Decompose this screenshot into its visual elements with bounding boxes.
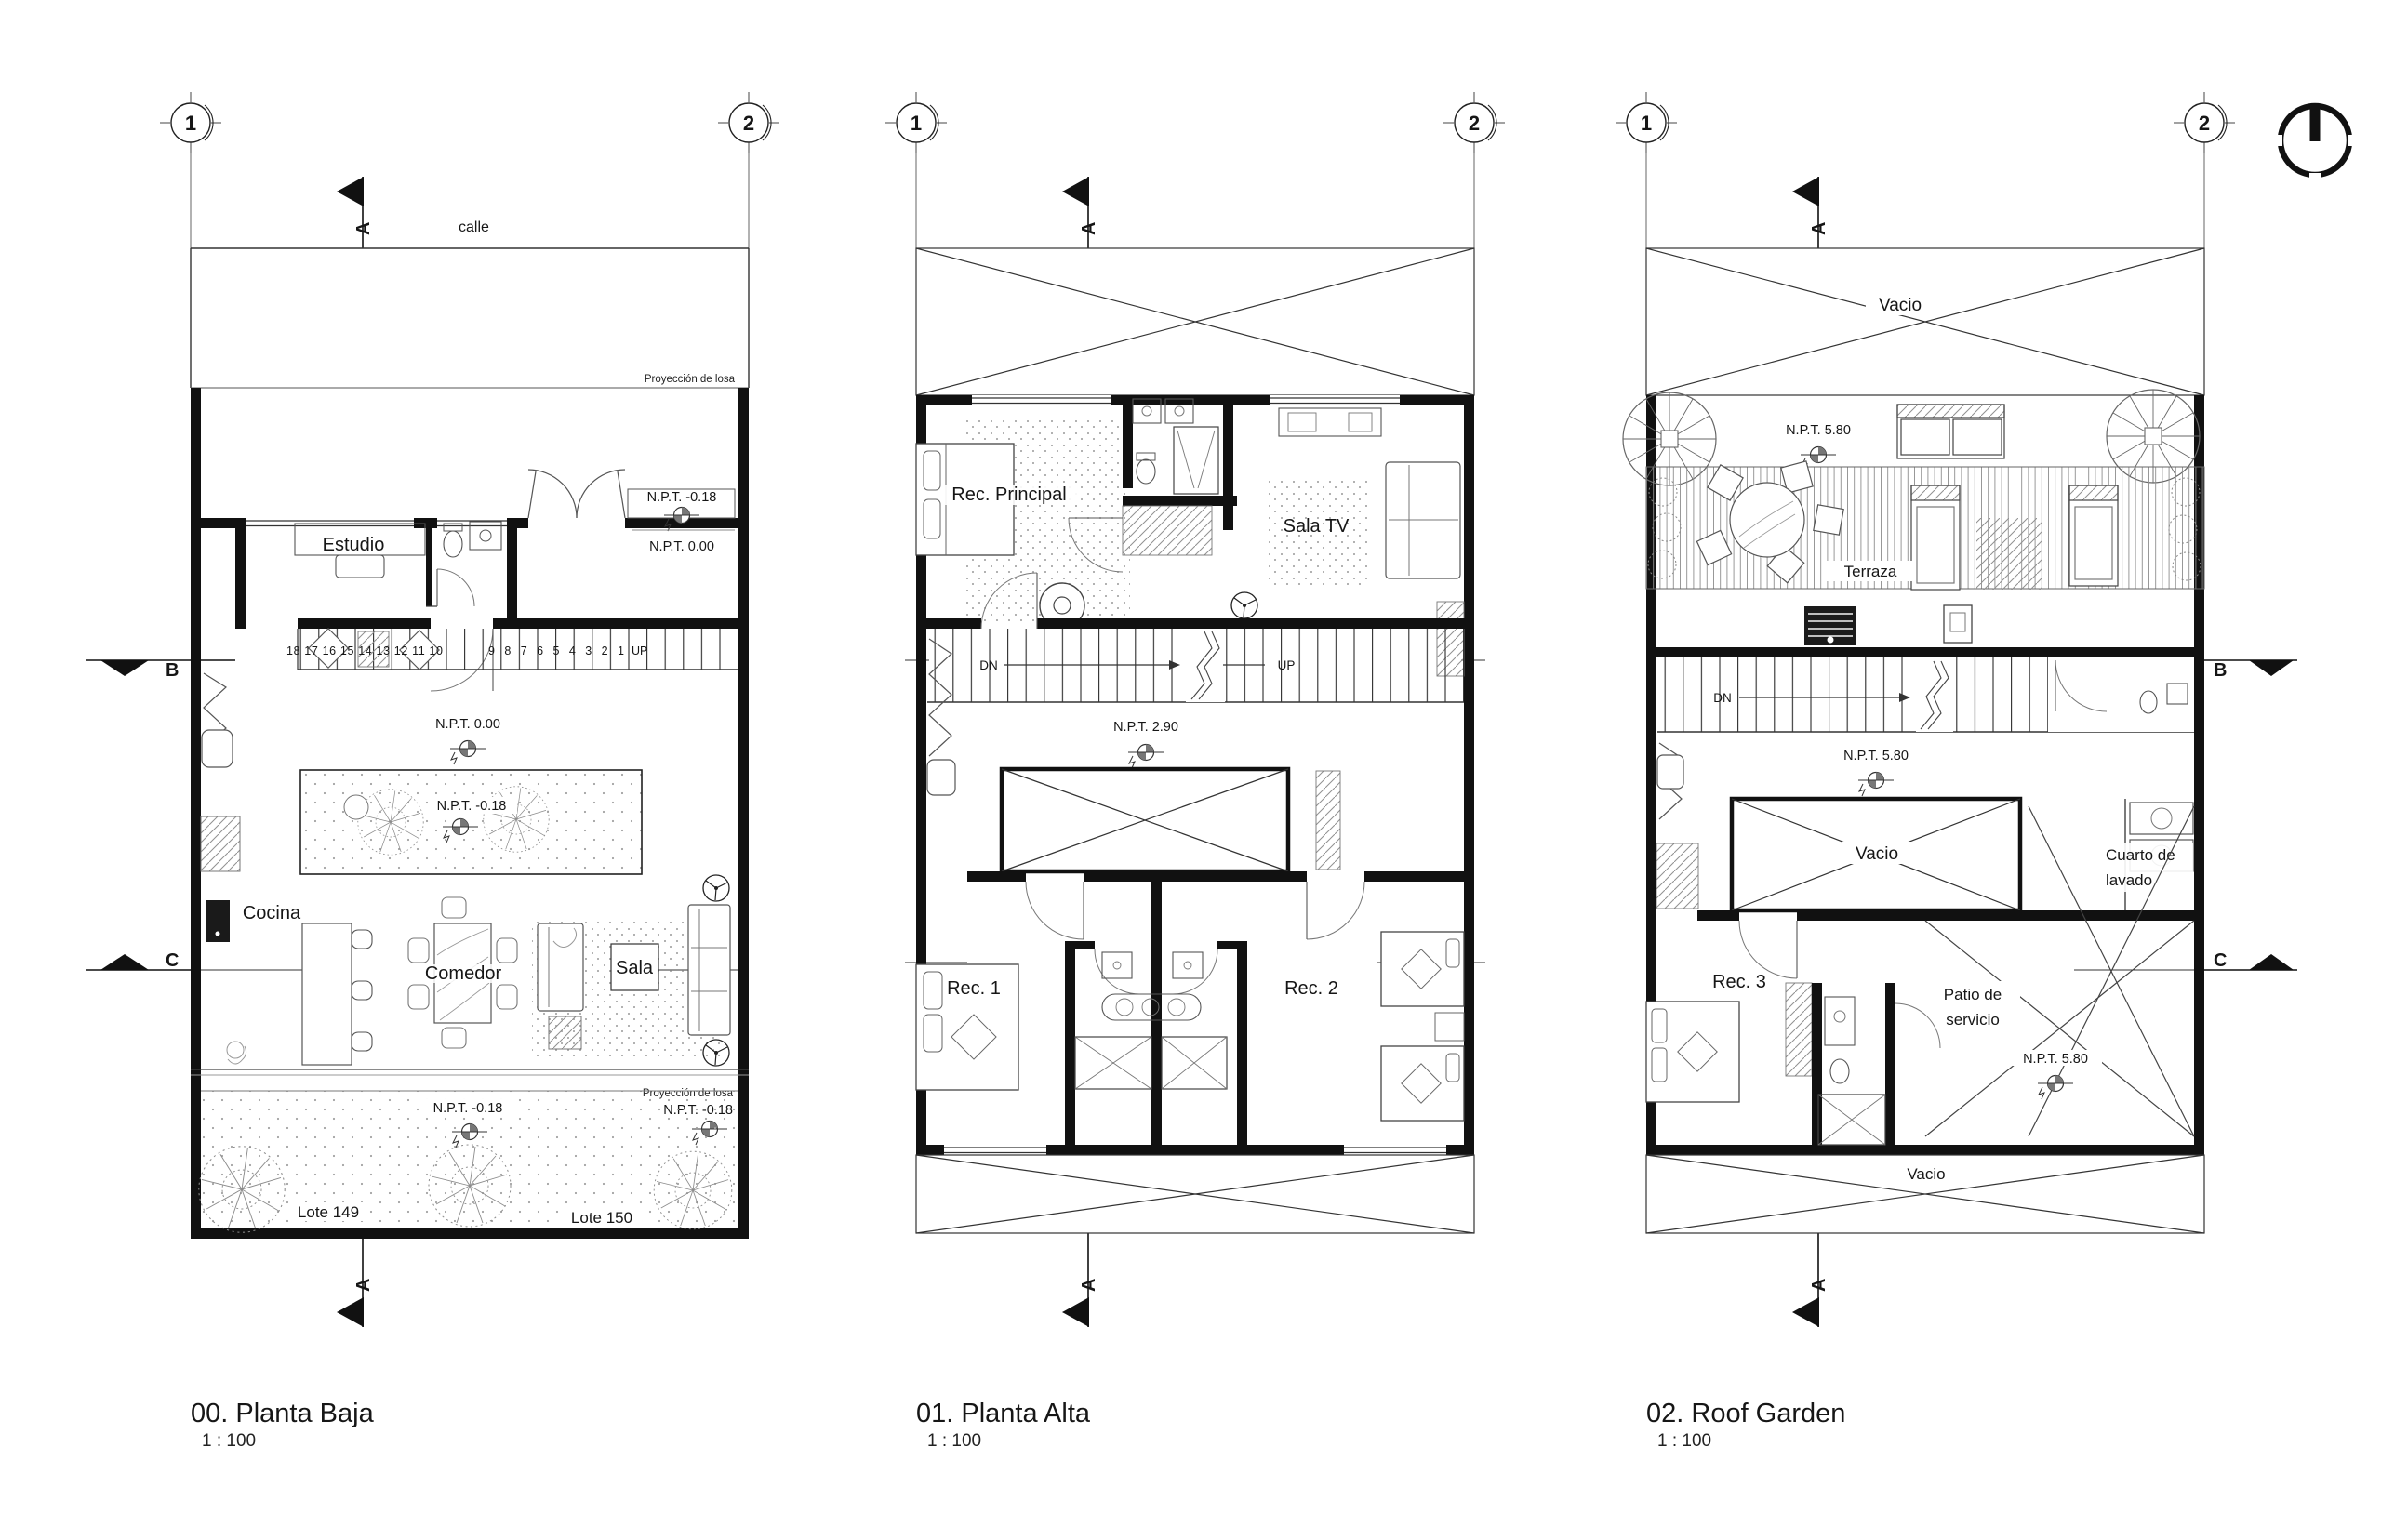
npt-label: N.P.T. -0.18 — [437, 799, 507, 814]
terrace-sink — [1944, 605, 1972, 643]
shower — [1174, 427, 1218, 494]
plan-scale: 1 : 100 — [927, 1431, 981, 1451]
section-marker-a-top: A — [1792, 177, 1829, 248]
laundry-sink — [202, 730, 233, 767]
outdoor-rug — [1976, 518, 2042, 590]
cuarto-lavado: Cuarto de lavado — [2100, 799, 2193, 910]
stairs: 18 17 16 15 14 13 12 11 10 9 8 7 6 5 4 3… — [286, 629, 738, 670]
room-label-estudio: Estudio — [323, 535, 385, 555]
room-label-comedor: Comedor — [425, 963, 502, 984]
room-label-patio-servicio: Patio de — [1944, 986, 2002, 1003]
wall-bottom — [1646, 1145, 2204, 1155]
slab-projection-label: Proyección de losa — [645, 374, 736, 385]
vacio-label: Vacio — [1907, 1165, 1945, 1183]
stair-numbers-run-a: 18 17 16 15 14 13 12 11 10 — [286, 644, 443, 657]
toilet — [2140, 691, 2157, 713]
terraza-label: Terraza — [1844, 563, 1897, 580]
npt-label: N.P.T. 0.00 — [649, 539, 714, 554]
street-label: calle — [459, 219, 489, 235]
grid-label: 1 — [185, 112, 196, 135]
outdoor-sofa — [1897, 405, 2004, 458]
section-label: B — [166, 660, 179, 681]
section-marker-a-bottom: A — [1062, 1233, 1099, 1327]
section-marker-c: C — [2074, 950, 2297, 971]
plan-planta-baja: 1 2 A A B C calle Proyección de losa — [86, 92, 779, 1451]
plan-scale: 1 : 100 — [1657, 1431, 1711, 1451]
grid-bubble-2: 2 — [2174, 92, 2235, 153]
stools — [352, 930, 372, 1051]
npt-label: N.P.T. 5.80 — [1786, 423, 1851, 438]
plan-title: 02. Roof Garden — [1646, 1399, 1845, 1428]
vacio-bottom: Vacio — [1646, 1155, 2204, 1233]
grid-label: 2 — [743, 112, 754, 135]
north-arrow-icon — [2273, 105, 2357, 182]
section-marker-a-top: A — [1062, 177, 1099, 248]
stair-up-label: UP — [632, 644, 647, 657]
room-label-rec-2: Rec. 2 — [1284, 978, 1338, 999]
room-label-cuarto-lavado-2: lavado — [2106, 871, 2152, 889]
section-label: B — [2214, 660, 2227, 681]
bed — [1381, 1046, 1464, 1121]
stair-numbers-run-b: 9 8 7 6 5 4 3 2 1 — [488, 644, 624, 657]
grid-label: 2 — [1469, 112, 1480, 135]
npt-label: N.P.T. -0.18 — [433, 1101, 503, 1116]
stair-up-label: UP — [1278, 658, 1296, 672]
level-symbol — [450, 741, 486, 765]
wall-right — [738, 388, 749, 1239]
wall-estudio — [235, 518, 246, 629]
rec-3: Rec. 3 — [1646, 972, 1812, 1102]
grid-label: 1 — [1641, 112, 1652, 135]
grid-bubble-2: 2 — [1443, 92, 1505, 153]
floor-plans-svg: 1 2 A A B C calle Proyección de losa — [0, 0, 2381, 1540]
lot-label-149: Lote 149 — [298, 1203, 359, 1221]
wall-left — [191, 388, 201, 1239]
section-marker-a-bottom: A — [1792, 1233, 1829, 1327]
npt-label: N.P.T. 0.00 — [435, 717, 500, 732]
toilet — [444, 531, 462, 557]
grid-bubble-1: 1 — [1616, 92, 1677, 153]
ottoman — [549, 1016, 581, 1049]
person-figure — [227, 1042, 246, 1064]
roof-area-top — [916, 248, 1474, 395]
grid-label: 2 — [2199, 112, 2210, 135]
toilet — [1137, 459, 1155, 484]
rec-1: Rec. 1 — [916, 964, 1018, 1090]
wall-bottom — [191, 1228, 749, 1239]
plan-scale: 1 : 100 — [202, 1431, 256, 1451]
patio: N.P.T. -0.18 — [300, 770, 642, 874]
grid-bubble-2: 2 — [718, 92, 779, 153]
grid-bubble-1: 1 — [160, 92, 221, 153]
plan-planta-alta: 1 2 A A — [885, 92, 1505, 1451]
section-label: A — [1809, 222, 1829, 235]
vacio-label: Vacio — [1879, 296, 1922, 315]
level-symbol — [2038, 1076, 2073, 1100]
section-label: C — [2214, 950, 2227, 971]
bath-sink — [927, 760, 955, 795]
front-garden: N.P.T. -0.18 Lote 149 Lote 150 — [199, 1091, 738, 1232]
npt-label: N.P.T. -0.18 — [647, 490, 717, 505]
bed — [1646, 1002, 1739, 1102]
grid-label: 1 — [911, 112, 922, 135]
section-label: A — [1079, 1279, 1099, 1292]
plan-title: 00. Planta Baja — [191, 1399, 375, 1428]
rec-2: Rec. 2 — [1284, 932, 1464, 1121]
ceiling-fan-icon — [1231, 592, 1257, 618]
vacio-top: Vacio — [1646, 248, 2204, 395]
room-label-patio-servicio-2: servicio — [1946, 1011, 2000, 1029]
stairs: DN UP — [927, 629, 1464, 702]
section-label: A — [353, 222, 374, 235]
section-marker-b: B — [86, 660, 235, 681]
level-symbol — [1858, 773, 1894, 797]
ceiling-fan-icon — [703, 875, 729, 901]
room-label-cocina: Cocina — [243, 903, 301, 923]
living-room: Sala — [532, 875, 730, 1066]
kitchen-island — [302, 923, 352, 1065]
stair-dn-label: DN — [1713, 691, 1732, 705]
roof-area-bottom — [916, 1155, 1474, 1233]
room-label-rec-principal: Rec. Principal — [951, 485, 1066, 505]
counter — [201, 816, 240, 871]
entry-double-door — [528, 470, 625, 518]
bathroom-rec3 — [1812, 983, 1940, 1155]
sofa-right — [688, 905, 730, 1035]
section-marker-c: C — [86, 950, 191, 971]
plan-roof-garden: 1 2 A A B C Vacio N.P.T. 5.80 — [1616, 92, 2297, 1451]
section-label: A — [1079, 222, 1099, 235]
void — [1002, 769, 1288, 871]
stairs: DN — [1657, 657, 2194, 732]
room-label-rec-3: Rec. 3 — [1712, 972, 1766, 992]
room-label-sala-tv: Sala TV — [1284, 516, 1350, 537]
section-label: C — [166, 950, 179, 971]
bed — [1381, 932, 1464, 1006]
hall-sink — [1657, 755, 1683, 789]
room-label-sala: Sala — [616, 958, 654, 978]
grid-bubble-1: 1 — [885, 92, 947, 153]
toilet — [1830, 1059, 1849, 1083]
rec-principal: Rec. Principal — [916, 420, 1130, 625]
lot-label-150: Lote 150 — [571, 1209, 632, 1227]
section-label: A — [1809, 1279, 1829, 1292]
room-label-cuarto-lavado: Cuarto de — [2106, 846, 2175, 864]
section-marker-a-bottom: A — [337, 1239, 374, 1327]
drawing-sheet: 1 2 A A B C calle Proyección de losa — [0, 0, 2381, 1540]
bathroom — [426, 518, 517, 629]
room-label-rec-1: Rec. 1 — [947, 978, 1001, 999]
section-label: A — [353, 1279, 374, 1292]
void-mid: Vacio — [1732, 799, 2020, 910]
plan-title: 01. Planta Alta — [916, 1399, 1091, 1428]
npt-label: N.P.T. 5.80 — [1843, 749, 1909, 763]
level-symbol — [1128, 745, 1164, 769]
section-marker-a-top: A — [337, 177, 374, 248]
npt-label: N.P.T. 2.90 — [1113, 720, 1178, 735]
vacio-label: Vacio — [1856, 844, 1898, 864]
stair-dn-label: DN — [979, 658, 998, 672]
bathrooms-center — [1065, 882, 1247, 1155]
terraza: N.P.T. 5.80 — [1623, 390, 2204, 590]
npt-label: N.P.T. 5.80 — [2023, 1052, 2088, 1067]
